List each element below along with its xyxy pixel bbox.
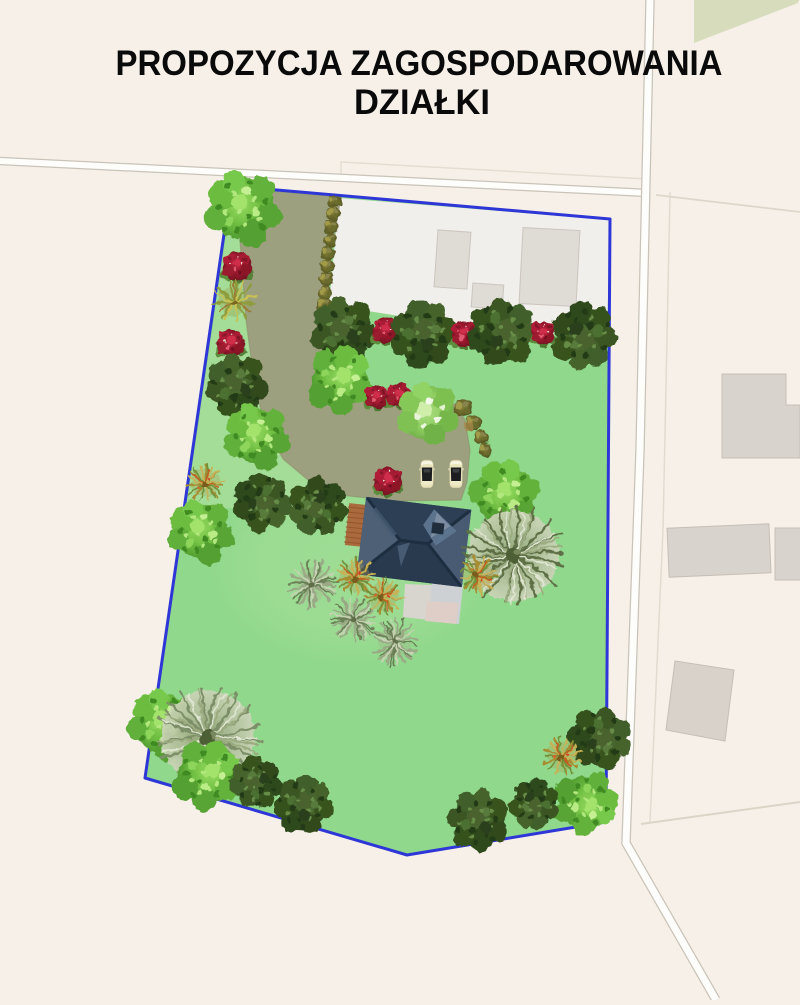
svg-text:DZIAŁKI: DZIAŁKI [354, 83, 490, 122]
svg-text:PROPOZYCJA ZAGOSPODAROWANIA: PROPOZYCJA ZAGOSPODAROWANIA [116, 44, 723, 83]
